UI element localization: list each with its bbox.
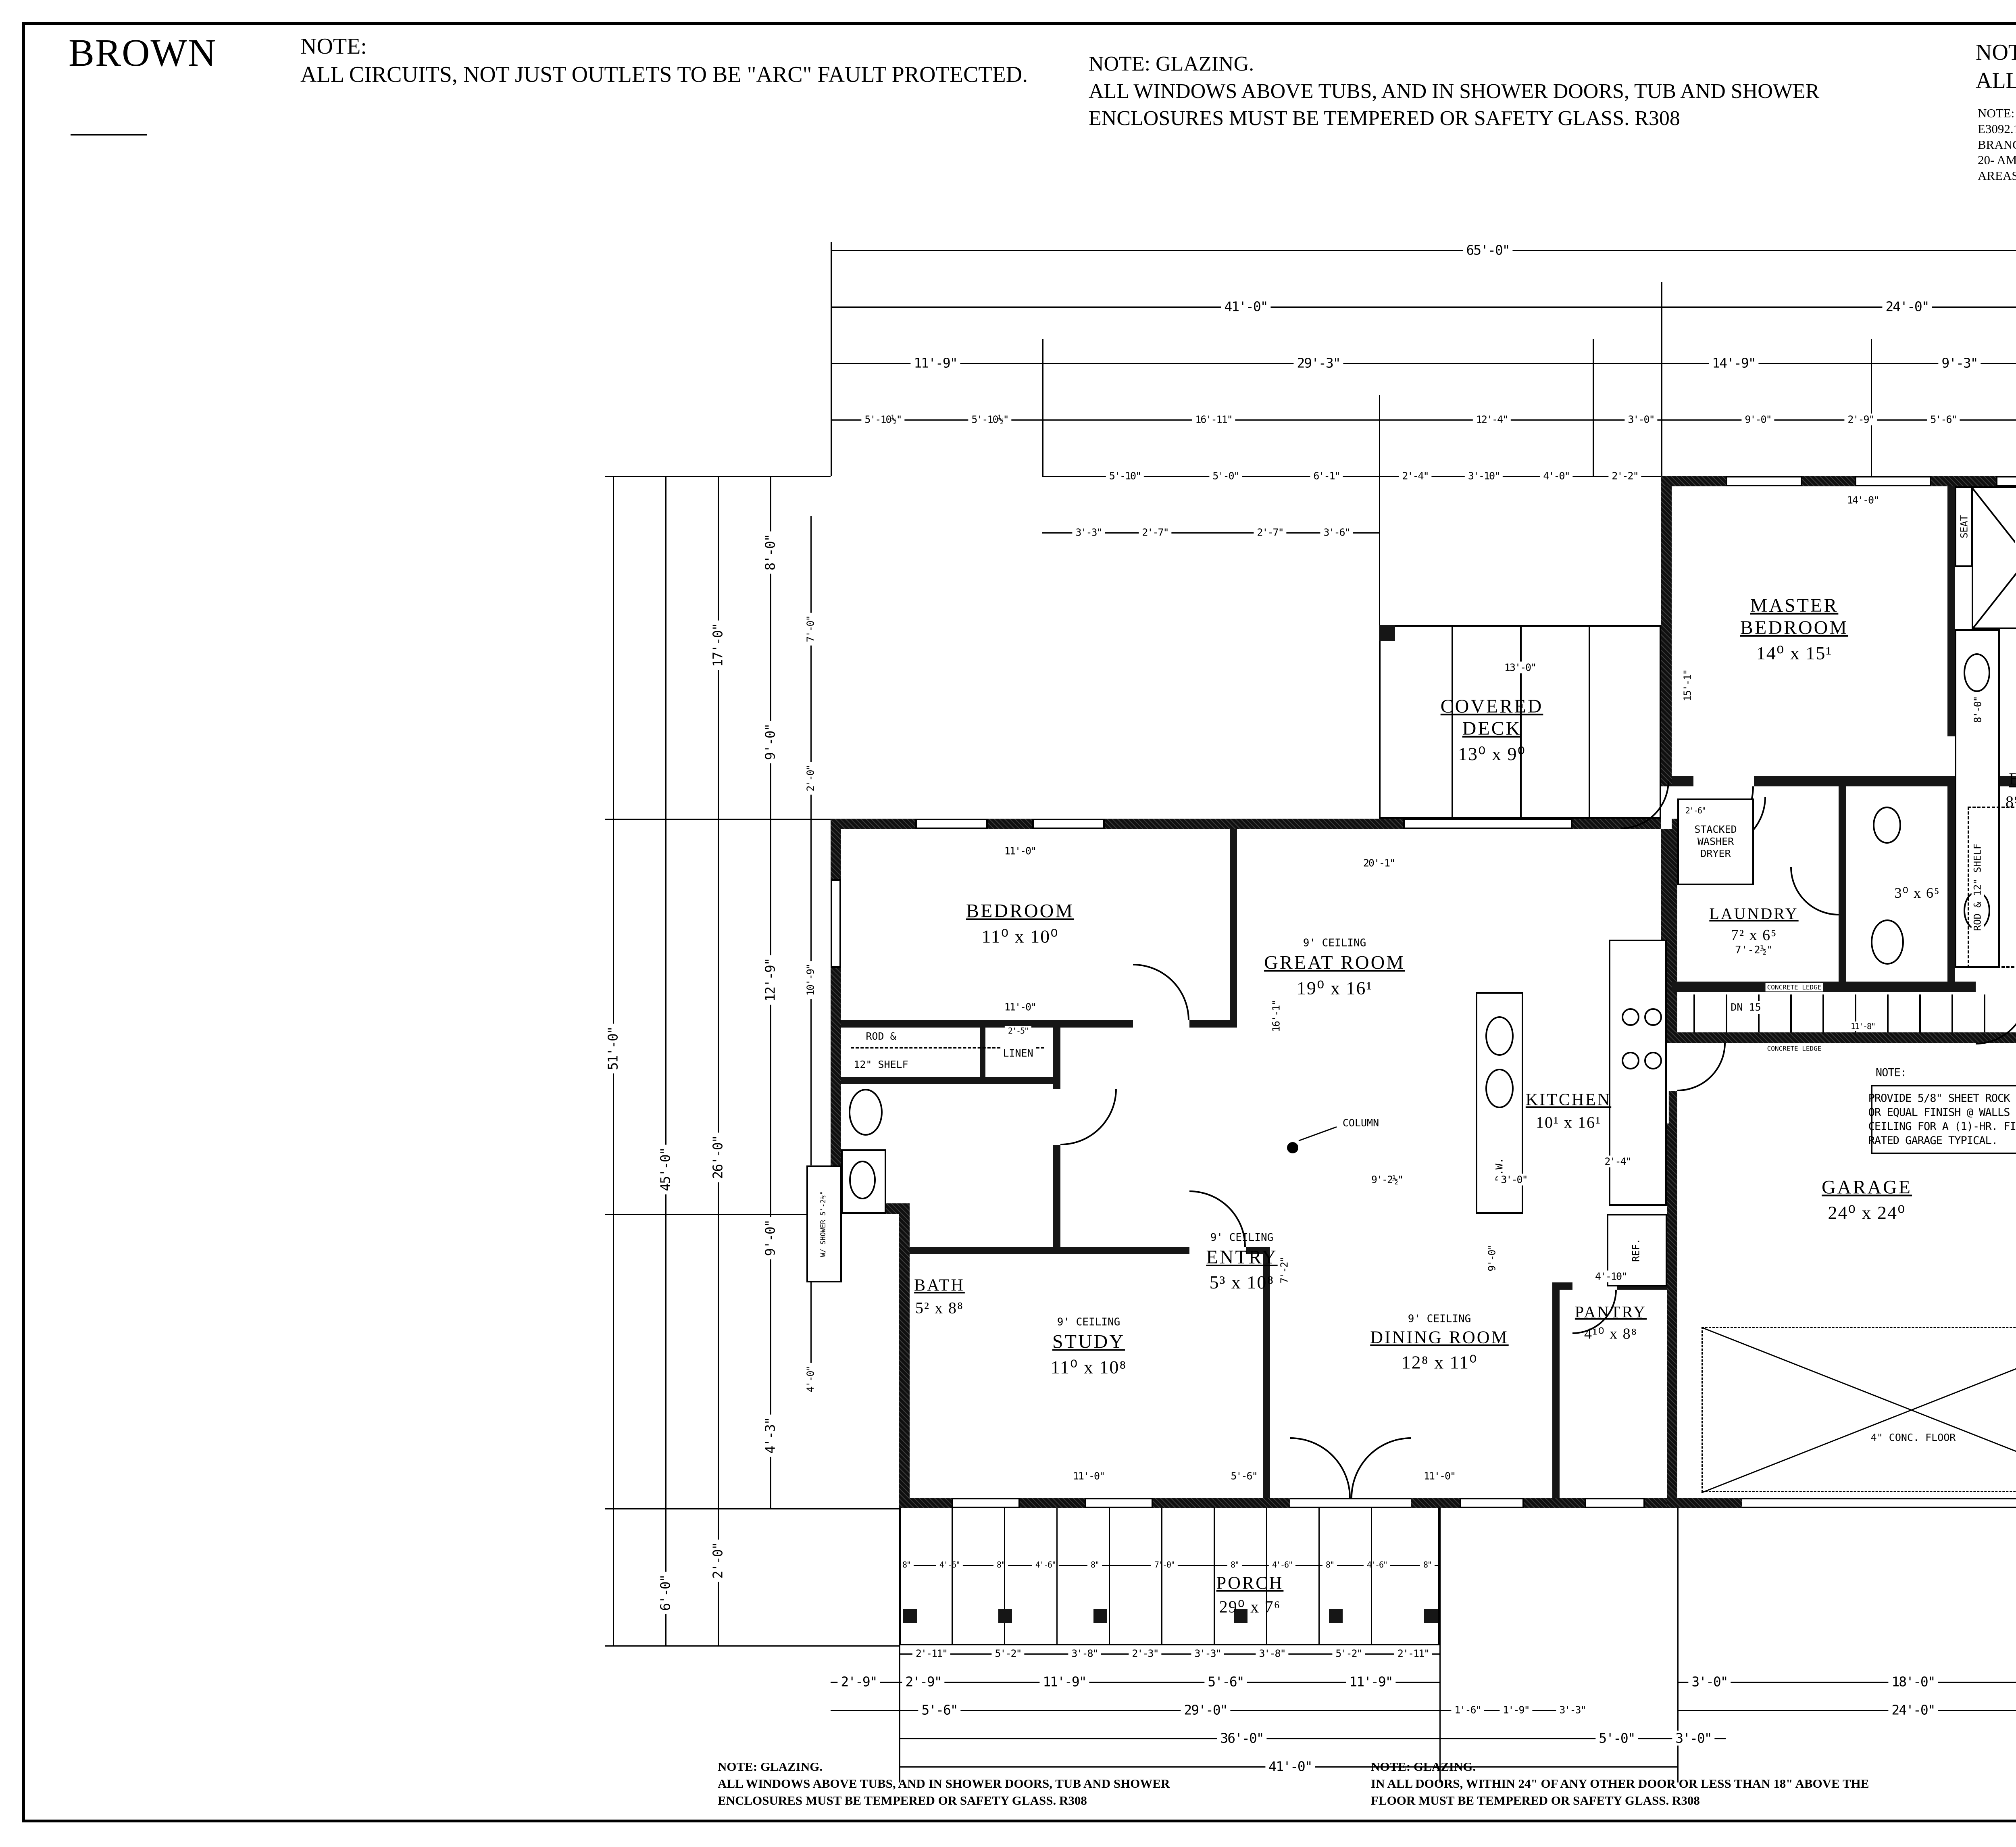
window [1085, 1498, 1153, 1508]
dim-label: 11'-8" [1847, 1021, 1878, 1031]
dim-label: 3'-3" [1191, 1648, 1224, 1659]
door-opening [1846, 867, 1853, 915]
window [1726, 476, 1802, 486]
dim-label: 3'-0" [1688, 1674, 1731, 1689]
stair-tread [1822, 994, 1824, 1032]
dim-label: 29'-0" [1181, 1703, 1230, 1718]
wall-interior [980, 1020, 985, 1080]
entry-door-opening [1290, 1498, 1411, 1508]
dim-label: 5'-0" [1595, 1731, 1638, 1746]
ext-line [1439, 1508, 1441, 1782]
dim-label: 2'-9" [902, 1674, 944, 1689]
room-label-master-bath: BATH8⁹ x 15¹ [2006, 769, 2016, 811]
dim-label: 2'-7" [1254, 527, 1286, 538]
wall-interior [1947, 786, 1955, 982]
window [1996, 476, 2016, 486]
ext-line [1042, 339, 1043, 476]
dim-label: 8'-0" [1972, 693, 1984, 726]
dim-label: 6'-0" [658, 1572, 673, 1614]
stair-tread [1919, 994, 1921, 1032]
ext-line [1593, 339, 1594, 476]
wall-interior [841, 1077, 1060, 1084]
signature-line [71, 134, 147, 136]
note-afci: NOTE:E3092.16 ARC-FAULT CIRCUIT-INTERRUP… [1978, 106, 2016, 184]
stairs-dn-label: DN 15 [1729, 1001, 1762, 1014]
porch-post [903, 1609, 917, 1623]
dim-label: 11'-0" [1420, 1470, 1458, 1482]
dim-label: 11'-0" [1070, 1470, 1108, 1482]
dim-label: 12'-4" [1473, 414, 1511, 425]
garage-note-title: NOTE: [1874, 1065, 1908, 1080]
room-label-master-bedroom: MASTER BEDROOM14⁰ x 15¹ [1740, 594, 1848, 664]
concrete-ledge-label: CONCRETE LEDGE [1766, 983, 1823, 991]
room-label-bath: BATH5² x 8⁸ [914, 1276, 965, 1317]
room-label-pantry: PANTRY4¹⁰ x 8⁸ [1575, 1303, 1647, 1343]
dim-label: 51'-0" [606, 1024, 621, 1073]
window-slider [1403, 819, 1572, 829]
porch-deck-line [1214, 1508, 1215, 1644]
sink [1485, 1069, 1514, 1108]
burner [1622, 1052, 1639, 1069]
dim-label: 24'-0" [1888, 1703, 1938, 1718]
conc-floor-label: 4" CONC. FLOOR [1869, 1431, 1958, 1444]
wall [1661, 486, 1672, 829]
shelf-label: 12" SHELF [852, 1058, 910, 1071]
dim-label: 2'-0" [710, 1539, 725, 1582]
ext-line [1379, 395, 1380, 625]
rod-shelf-label: ROD & 12" SHELF [1972, 842, 1984, 933]
stair-tread [1984, 994, 1985, 1032]
dim-label: 2'-6" [1682, 806, 1709, 815]
ext-line [1661, 282, 1662, 476]
deck-beam [1589, 627, 1590, 817]
rod-label: ROD & [864, 1030, 898, 1043]
stair-tread [1951, 994, 1953, 1032]
dim-label: 41'-0" [1265, 1759, 1315, 1774]
dim-label: 2'-4" [1399, 470, 1431, 482]
dim-label: 3'-3" [1556, 1704, 1589, 1716]
dim-label: 16'-1" [1270, 997, 1282, 1035]
dim-label: 1'-6" [1451, 1704, 1484, 1716]
dim-label: 11'-9" [1346, 1674, 1395, 1689]
dim-label: 5'-2" [1332, 1648, 1365, 1659]
dim-label: 9'-2½" [1368, 1174, 1406, 1186]
room-label-porch: PORCH29⁰ x 7⁶ [1216, 1573, 1284, 1617]
stair-tread [1693, 994, 1695, 1032]
dim-label: 24'-0" [1882, 299, 1932, 314]
dim-label: 8" [1227, 1560, 1242, 1570]
room-label-garage: GARAGE24⁰ x 24⁰ [1822, 1176, 1912, 1223]
porch-edge [899, 1508, 901, 1645]
dim-label: 5'-2" [991, 1648, 1024, 1659]
dim-label: 2'-9" [837, 1674, 880, 1689]
dim-label: 4'-6" [1364, 1560, 1390, 1570]
shower [1972, 486, 2016, 629]
dim-label: 13'-0" [1501, 662, 1539, 673]
dim-label: 2'-5" [1005, 1026, 1031, 1036]
dim-label: 5'-6" [1204, 1674, 1247, 1689]
wall-interior [1230, 829, 1237, 1020]
deck-post [1379, 625, 1395, 641]
dim-label: 3'-0" [1624, 414, 1657, 425]
note-title: NOTE: [1978, 106, 2014, 120]
porch-post [1424, 1609, 1438, 1623]
porch-deck-line [1318, 1508, 1320, 1644]
door-opening [1053, 1089, 1060, 1145]
stair-tread [1887, 994, 1889, 1032]
door-opening [1976, 982, 2016, 992]
toilet [849, 1089, 883, 1136]
room-label-covered-deck: COVERED DECK13⁰ x 9⁰ [1441, 695, 1543, 765]
dim-label: 2'-0" [805, 762, 816, 794]
sink [849, 1161, 876, 1199]
porch-edge [1438, 1508, 1439, 1645]
blueprint-sheet: BROWN NOTE:ALL CIRCUITS, NOT JUST OUTLET… [0, 0, 2016, 1847]
note-line: IN ALL DOORS, WITHIN 24" OF ANY OTHER DO… [1371, 1776, 1869, 1791]
dim-label: 9'-3" [1938, 356, 1981, 371]
note-line: ENCLOSURES MUST BE TEMPERED OR SAFETY GL… [718, 1793, 1087, 1807]
dim-label: 36'-0" [1217, 1731, 1266, 1746]
concrete-ledge-label: CONCRETE LEDGE [1766, 1044, 1823, 1053]
dim-label: 2'-2" [1608, 470, 1641, 482]
note-line: BRANCH CIRCUITS THAT SUPPLY 120-VOLT, SI… [1978, 138, 2016, 152]
ext-line [605, 1645, 899, 1647]
note-title: NOTE: [1976, 40, 2016, 65]
porch-post [998, 1609, 1012, 1623]
burner [1644, 1052, 1662, 1069]
note-title: NOTE: [300, 34, 367, 59]
wall-interior [1672, 982, 2016, 992]
dim-label: 11'-0" [1001, 1001, 1039, 1013]
room-label-great-room: 9' CEILINGGREAT ROOM19⁰ x 16¹ [1264, 937, 1405, 999]
stair-tread [1726, 994, 1727, 1032]
wall-interior [1839, 786, 1846, 982]
porch-deck-line [1109, 1508, 1110, 1644]
dim-label: 2'-4" [1601, 1156, 1634, 1167]
dim-label: 26'-0" [710, 1132, 725, 1182]
dim-label: 3'-0" [1672, 1731, 1714, 1746]
dim-label: 16'-11" [1192, 414, 1235, 425]
dim-label: 7'-2" [1279, 1254, 1290, 1286]
porch-deck-line [1056, 1508, 1058, 1644]
note-arc-fault: NOTE:ALL CIRCUITS, NOT JUST OUTLETS TO B… [300, 32, 1028, 89]
refrigerator-label: REF. [1630, 1237, 1643, 1263]
dim-line [831, 363, 2016, 364]
dim-label: 20'-1" [1360, 857, 1398, 869]
linen-label: LINEN [1001, 1047, 1035, 1060]
dim-label: 2'-11" [912, 1648, 950, 1659]
burner [1644, 1008, 1662, 1026]
dim-label: 2'-7" [1139, 527, 1171, 538]
window [1585, 1498, 1645, 1508]
dim-label: 4'-6" [1032, 1560, 1059, 1570]
dim-label: 8'-0" [763, 531, 778, 573]
room-label-study: 9' CEILINGSTUDY11⁰ x 10⁸ [1051, 1316, 1127, 1378]
wall [1661, 476, 2016, 486]
door-opening [1133, 1020, 1189, 1028]
wall [1667, 1032, 2016, 1043]
dim-label: 6'-1" [1310, 470, 1343, 482]
dim-label: 3'-10" [1465, 470, 1503, 482]
porch-edge [899, 1644, 1439, 1645]
note-glazing-bottom-mid: NOTE: GLAZING.IN ALL DOORS, WITHIN 24" O… [1371, 1758, 1869, 1809]
column-label: COLUMN [1341, 1117, 1381, 1130]
dim-label: 14'-0" [1844, 494, 1882, 506]
dim-label: 3'-6" [1320, 527, 1353, 538]
dim-label: 8" [993, 1560, 1008, 1570]
dim-label: 11'-9" [1039, 1674, 1089, 1689]
dim-label: 5'-6" [1927, 414, 1960, 425]
dim-label: 8" [1322, 1560, 1337, 1570]
room-label-laundry: LAUNDRY7² x 6⁵7'-2½" [1709, 905, 1798, 959]
dim-label: 65'-0" [1463, 243, 1512, 258]
dim-label: 3'-8" [1068, 1648, 1101, 1659]
dim-line [831, 306, 2016, 308]
porch-deck-line [952, 1508, 953, 1644]
dim-label: 5'-6" [918, 1703, 960, 1718]
note-line: FLOOR MUST BE TEMPERED OR SAFETY GLASS. … [1371, 1793, 1700, 1807]
dim-label: 4'-0" [805, 1363, 816, 1395]
note-line: 20- AMP OUTLETS INSTALLED IN KITCHENS, B… [1978, 153, 2016, 167]
note-line: NOTE: GLAZING. [718, 1759, 823, 1774]
dim-label: 4'-6" [1269, 1560, 1295, 1570]
dim-label: 29'-3" [1293, 356, 1343, 371]
wall-interior [1552, 1282, 1560, 1498]
dim-label: 2'-11" [1394, 1648, 1432, 1659]
dim-label: 9'-0" [1741, 414, 1774, 425]
dim-label: 5'-10½" [861, 414, 904, 425]
dim-label: 9'-0" [763, 721, 778, 763]
toilet [1871, 919, 1904, 965]
note-line: NOTE: GLAZING. [1371, 1759, 1476, 1774]
client-title: BROWN [69, 30, 217, 75]
dim-label: 5'-10½" [968, 414, 1011, 425]
dim-line [1677, 1710, 2016, 1711]
note-line: ALL WINDOWS ABOVE TUBS, AND IN SHOWER DO… [1089, 80, 1819, 103]
note-glazing-bottom-left: NOTE: GLAZING.ALL WINDOWS ABOVE TUBS, AN… [718, 1758, 1170, 1809]
dim-label: 14'-9" [1709, 356, 1758, 371]
dim-label: 12'-9" [763, 955, 778, 1005]
dim-label: 5'-6" [1227, 1470, 1260, 1482]
dim-label: 8" [1087, 1560, 1102, 1570]
dim-label: 5'-0" [1209, 470, 1242, 482]
window [831, 879, 841, 968]
dim-label: 45'-0" [658, 1144, 673, 1194]
room-label-dining: 9' CEILINGDINING ROOM12⁸ x 11⁰ [1370, 1313, 1508, 1373]
note-line: E3092.16 ARC-FAULT CIRCUIT-INTERRUPTER P… [1978, 122, 2016, 136]
dim-label: 17'-0" [710, 620, 725, 670]
tub-shower-label: W/ SHOWER 5'-2½" [819, 1189, 828, 1259]
washer-dryer-label: STACKED WASHER DRYER [1693, 823, 1738, 860]
dim-label: 9'-0" [763, 1217, 778, 1259]
dim-label: 3'-8" [1256, 1648, 1288, 1659]
window [915, 819, 988, 829]
column [1287, 1142, 1298, 1153]
concrete-apron [1702, 1327, 2016, 1492]
dim-label: 7'-0" [805, 613, 816, 645]
window [1460, 1498, 1524, 1508]
dim-label: 7'-0" [1151, 1560, 1178, 1570]
dim-label: 15'-1" [1682, 667, 1693, 705]
dim-label: 41'-0" [1221, 299, 1270, 314]
room-label-bedroom: BEDROOM11⁰ x 10⁰ [966, 900, 1074, 947]
dim-label: 11'-0" [1001, 845, 1039, 857]
note-tamper-proof: NOTE:ALL ELECTRICAL RECEPTACLES ARE TO B… [1976, 38, 2016, 95]
dim-label: 3'-3" [1072, 527, 1105, 538]
room-label-kitchen: KITCHEN10¹ x 16¹ [1526, 1090, 1611, 1132]
note-line: NOTE: GLAZING. [1089, 52, 1254, 75]
window [1032, 819, 1105, 829]
dim-line [665, 476, 666, 1645]
dim-label: 5'-10" [1106, 470, 1144, 482]
dim-label: 10'-9" [805, 961, 816, 999]
sink [1873, 807, 1901, 844]
dim-label: 3'-0" [1497, 1174, 1530, 1186]
dim-label: 4'-0" [1540, 470, 1572, 482]
note-line: AREAS SHALL BE PROTECTED BY (AFCI AS DEF… [1978, 169, 2016, 183]
door-opening [1693, 776, 1754, 786]
window [952, 1498, 1020, 1508]
porch-post [1329, 1609, 1343, 1623]
ext-line [831, 242, 832, 476]
porch-deck-line [1161, 1508, 1162, 1644]
garage-note-body: PROVIDE 5/8" SHEET ROCK OR EQUAL FINISH … [1867, 1091, 2016, 1148]
sink [1485, 1016, 1514, 1056]
dim-label: 18'-0" [1888, 1674, 1938, 1689]
sink [1964, 653, 1990, 692]
dim-label: 2'-3" [1129, 1648, 1161, 1659]
burner [1622, 1008, 1639, 1026]
note-body: ALL CIRCUITS, NOT JUST OUTLETS TO BE "AR… [300, 62, 1028, 87]
ext-line [1871, 339, 1872, 476]
dim-line [831, 250, 2016, 251]
window [1855, 476, 1931, 486]
dim-label: 8" [1420, 1560, 1435, 1570]
porch-post [1093, 1609, 1107, 1623]
dim-label: 4'-3" [763, 1414, 778, 1457]
dim-label: 1'-9" [1500, 1704, 1532, 1716]
stair-tread [1790, 994, 1792, 1032]
wall-interior [1947, 486, 1955, 736]
ext-line [605, 1508, 899, 1509]
dim-label: 9'-0" [1486, 1242, 1498, 1274]
dim-label: 2'-9" [1844, 414, 1877, 425]
note-body: ALL ELECTRICAL RECEPTACLES ARE TO BE TAM… [1976, 68, 2016, 93]
garage-door-opening [1742, 1498, 2016, 1508]
note-line: ALL WINDOWS ABOVE TUBS, AND IN SHOWER DO… [718, 1776, 1170, 1791]
note-glazing-top: NOTE: GLAZING.ALL WINDOWS ABOVE TUBS, AN… [1089, 50, 1819, 132]
dim-label: 4'-6" [936, 1560, 963, 1570]
room-label-toilet: 3⁰ x 6⁵ [1895, 881, 1940, 901]
room-label-entry: 9' CEILINGENTRY5³ x 10⁸ [1206, 1232, 1277, 1293]
dim-label: 4'-10" [1592, 1271, 1630, 1282]
note-line: ENCLOSURES MUST BE TEMPERED OR SAFETY GL… [1089, 107, 1680, 130]
porch-deck-line [1004, 1508, 1005, 1644]
wall [899, 1214, 910, 1508]
dim-label: 11'-9" [910, 356, 960, 371]
dim-label: 8" [899, 1560, 914, 1570]
seat-label: SEAT [1958, 513, 1971, 540]
porch-deck-line [1371, 1508, 1372, 1644]
